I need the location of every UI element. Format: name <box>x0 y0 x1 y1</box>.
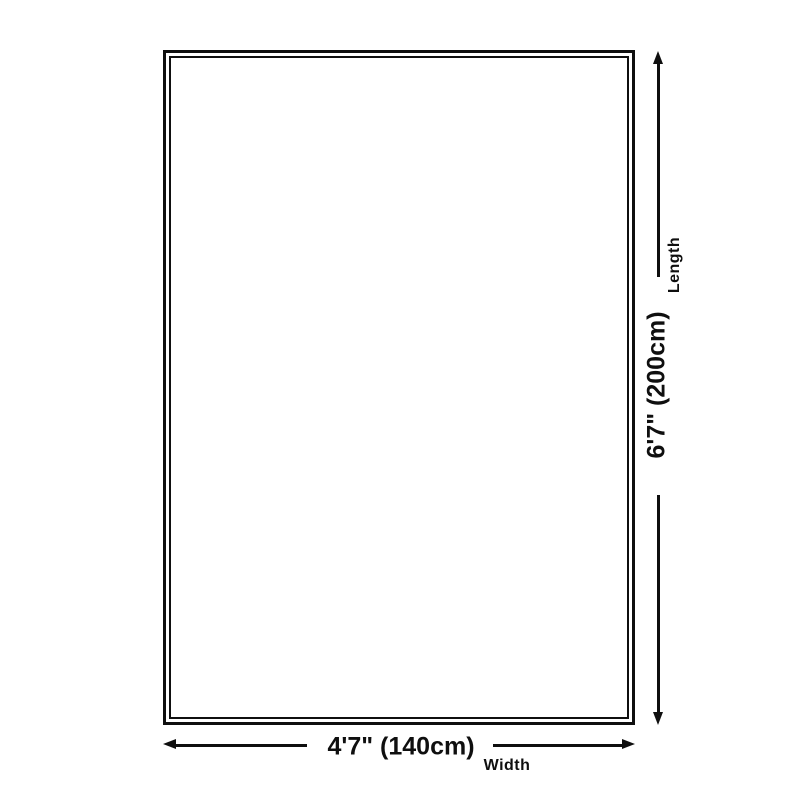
arrow-down-icon <box>653 712 663 725</box>
length-line-top <box>657 62 660 277</box>
width-value: 4'7" (140cm) <box>327 735 474 760</box>
length-axis-label: Length <box>667 237 683 293</box>
length-value: 6'7" (200cm) <box>645 311 670 458</box>
size-diagram: Length 6'7" (200cm) 4'7" (140cm) Width <box>0 0 800 800</box>
product-outline <box>163 50 635 725</box>
width-line-left <box>175 744 307 747</box>
length-line-bottom <box>657 495 660 713</box>
width-axis-label: Width <box>484 758 531 774</box>
product-inner-outline <box>169 56 629 719</box>
arrow-right-icon <box>622 739 635 749</box>
width-line-right <box>493 744 623 747</box>
